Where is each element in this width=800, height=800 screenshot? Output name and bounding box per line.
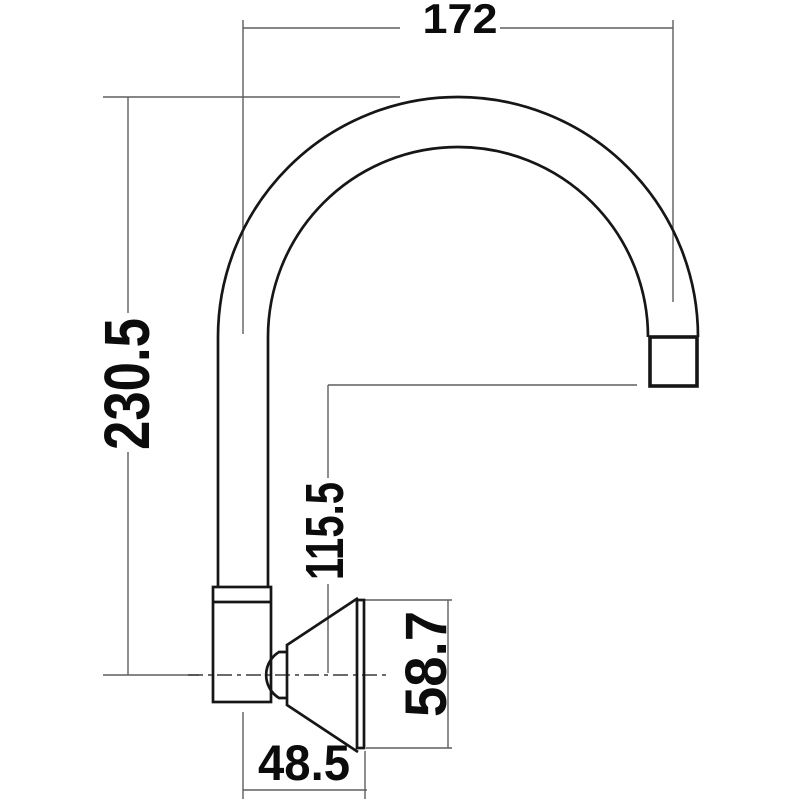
dim-label-overall-width: 172 — [423, 0, 498, 42]
dim-label-flange-height: 58.7 — [394, 611, 459, 717]
technical-drawing-canvas: 172 230.5 115.5 58.7 48.5 — [0, 0, 800, 800]
dimension-labels: 172 230.5 115.5 58.7 48.5 — [91, 0, 498, 791]
dim-label-wall-offset: 48.5 — [258, 735, 350, 791]
spout-outer-profile — [218, 97, 698, 587]
faucet-dimension-drawing: 172 230.5 115.5 58.7 48.5 — [0, 0, 800, 800]
dimension-lines — [103, 20, 673, 799]
dim-label-overall-height: 230.5 — [91, 318, 163, 450]
dim-label-spout-height: 115.5 — [295, 482, 355, 580]
mount-body — [213, 587, 271, 702]
spout-nozzle — [650, 337, 697, 386]
wall-flange-rim — [357, 600, 364, 748]
